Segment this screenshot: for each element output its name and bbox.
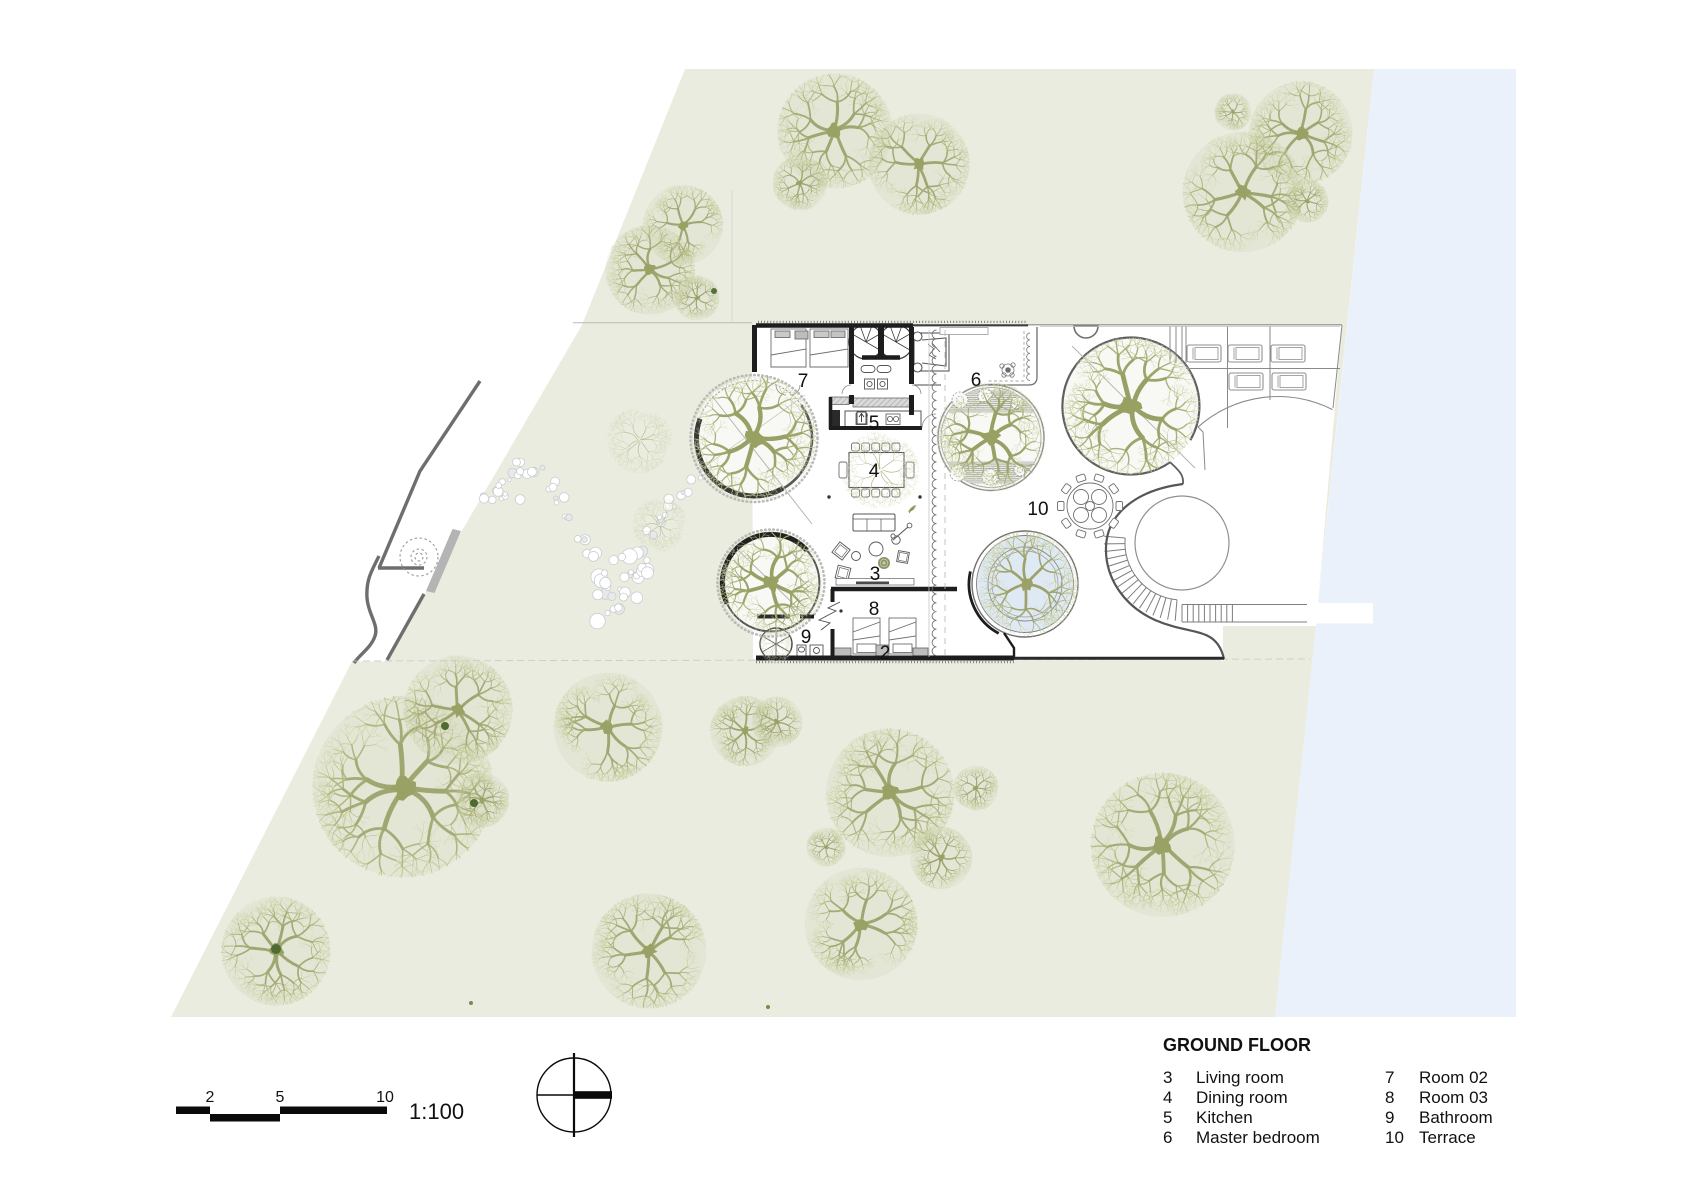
svg-text:GROUND FLOOR: GROUND FLOOR [1163,1035,1311,1055]
svg-text:4: 4 [1163,1088,1172,1107]
svg-text:3: 3 [870,564,881,585]
svg-text:6: 6 [971,370,982,391]
svg-text:Room 03: Room 03 [1419,1088,1488,1107]
svg-text:7: 7 [798,371,809,392]
svg-text:2: 2 [206,1089,215,1106]
svg-text:Kitchen: Kitchen [1196,1108,1253,1127]
svg-text:3: 3 [1163,1068,1172,1087]
svg-text:Bathroom: Bathroom [1419,1108,1493,1127]
svg-text:5: 5 [276,1089,285,1106]
svg-text:5: 5 [869,413,880,434]
svg-text:9: 9 [1385,1108,1394,1127]
svg-text:7: 7 [1385,1068,1394,1087]
svg-text:Dining room: Dining room [1196,1088,1288,1107]
svg-text:2: 2 [880,643,891,664]
svg-text:Living room: Living room [1196,1068,1284,1087]
svg-text:Terrace: Terrace [1419,1128,1476,1147]
svg-text:10: 10 [1027,499,1048,520]
svg-text:5: 5 [1163,1108,1172,1127]
svg-text:4: 4 [869,461,880,482]
svg-text:8: 8 [869,599,880,620]
svg-text:Room 02: Room 02 [1419,1068,1488,1087]
svg-text:8: 8 [1385,1088,1394,1107]
svg-text:Master bedroom: Master bedroom [1196,1128,1320,1147]
svg-text:10: 10 [1385,1128,1404,1147]
svg-text:9: 9 [801,627,812,648]
svg-text:1:100: 1:100 [409,1099,464,1124]
svg-text:10: 10 [376,1089,394,1106]
svg-text:6: 6 [1163,1128,1172,1147]
